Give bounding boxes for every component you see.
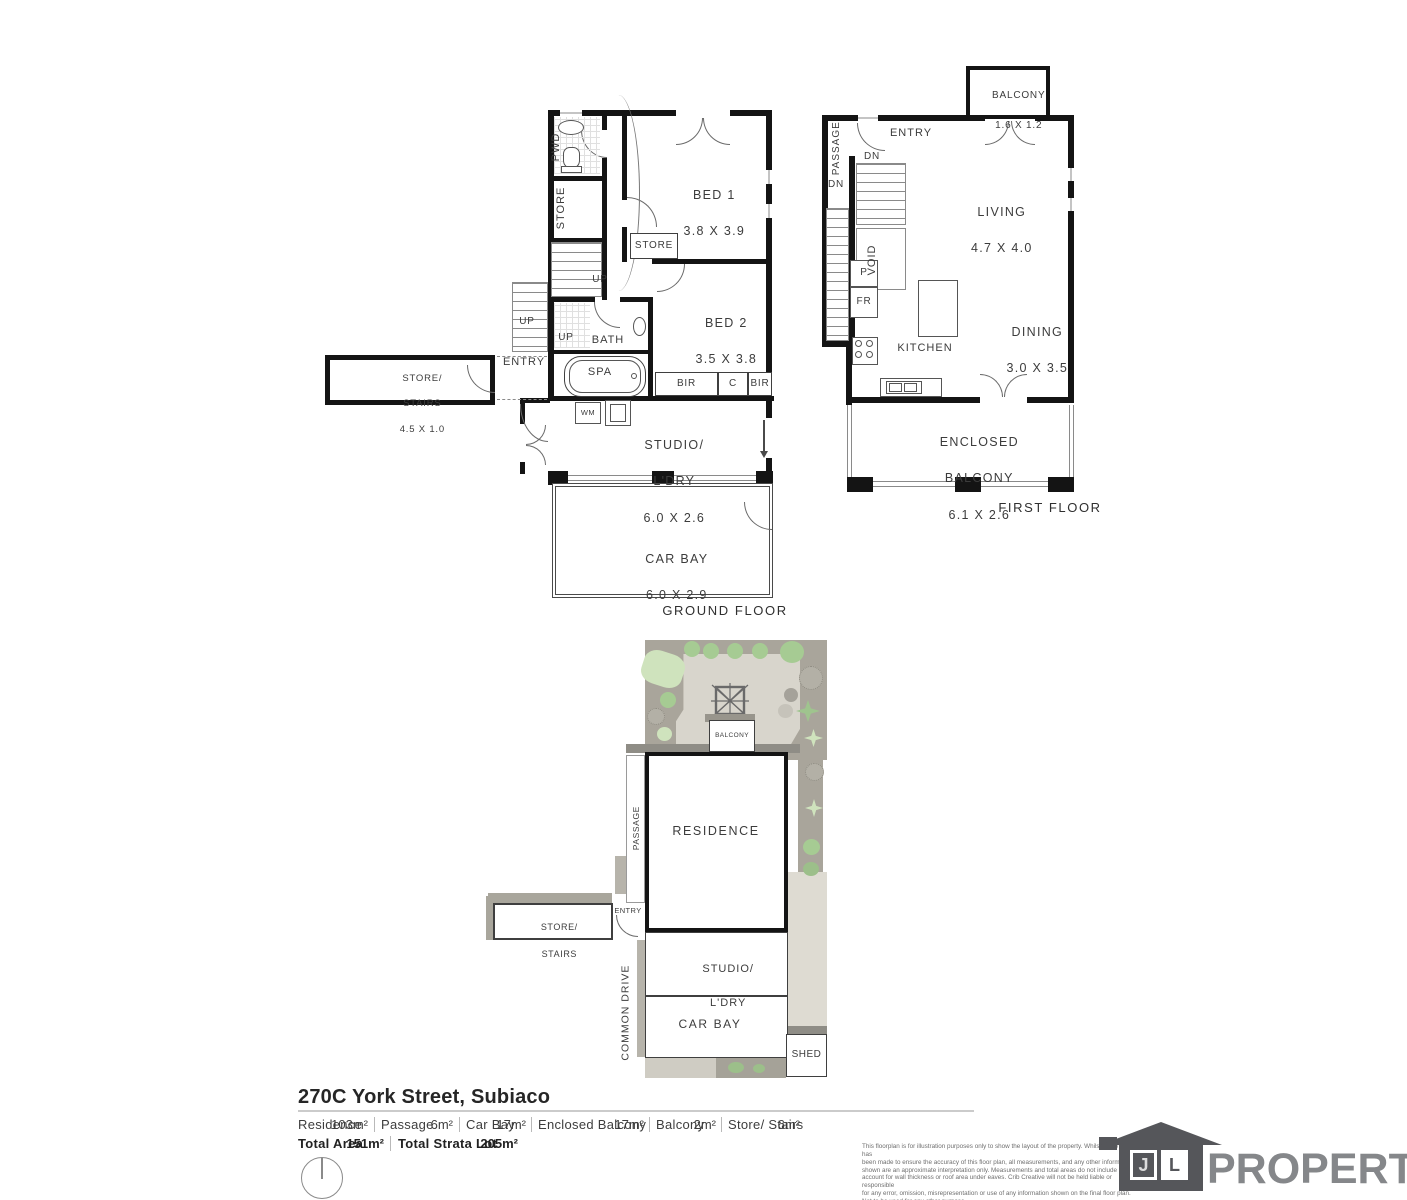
stove-burner [866,351,873,358]
logo-roof [1100,1122,1222,1145]
area-item-value: 17m² [486,1117,526,1132]
enclosed-balcony-label: ENCLOSED BALCONY 6.1 X 2.6 [905,415,1025,542]
living-name: LIVING [977,205,1026,219]
balcony-label: BALCONY 1.6 X 1.2 [966,73,1050,148]
fridge-label: FR [850,295,878,310]
studio-line2: L'DRY [653,474,695,488]
sink-bowl [889,383,902,392]
window [766,204,772,218]
bir-left-label: BIR [655,377,718,392]
passage-label: PASSAGE [830,108,845,188]
site-store-stairs-line1: STORE/ [541,922,578,932]
site-studio-line2: L'DRY [710,997,746,1009]
tree [803,839,820,855]
entry-label: ENTRY [498,355,550,371]
tree [684,641,700,657]
window [1068,168,1074,181]
paving-strip [716,1058,786,1078]
bed2-name: BED 2 [705,316,748,330]
store-label: STORE [554,168,570,248]
stove-burner [866,340,873,347]
divider [649,1117,650,1132]
area-item-value: 6m² [760,1117,800,1132]
door-arc [857,123,885,151]
dining-name: DINING [1012,325,1064,339]
site-passage-label: PASSAGE [630,788,642,868]
kitchen-label: KITCHEN [890,341,960,357]
site-balcony-label: BALCONY [709,731,755,740]
divider [721,1117,722,1132]
north-needle [321,1158,323,1179]
site-residence-box [645,752,788,932]
living-size: 4.7 X 4.0 [971,241,1033,255]
site-studio-line1: STUDIO/ [702,963,754,975]
bed1-store-label: STORE [630,239,678,254]
store-stairs-line2: STAIRS [403,398,441,409]
dn-label: DN [858,150,886,165]
door-arc [526,445,546,465]
total-value: 205m² [478,1136,518,1151]
wall-segment [520,462,525,474]
wall-segment [766,400,772,418]
logo-wordmark: PROPERTY [1207,1145,1407,1194]
logo-letter-l-box: L [1161,1150,1188,1180]
window [1068,198,1074,211]
site-carbay-label: CAR BAY [650,1016,770,1033]
tree [752,643,768,659]
paving-strip [615,856,626,894]
ground-floor-caption: GROUND FLOOR [660,602,790,621]
divider [374,1117,375,1132]
tree [703,643,719,659]
disclaimer-text: This floorplan is for illustration purpo… [862,1143,1140,1200]
paving-strip [786,1026,827,1034]
bed1-size: 3.8 X 3.9 [683,224,745,238]
door-arrow-head [760,451,768,458]
logo-letter-j-box: J [1130,1150,1157,1180]
up-label: UP [512,315,542,330]
window-wall [1069,405,1074,479]
shrub [753,1064,765,1073]
window [858,115,878,121]
tree [647,708,665,725]
tree [727,643,743,659]
spa-label: SPA [578,365,622,381]
tree [660,692,676,708]
door-arc [676,118,703,145]
studio-line1: STUDIO/ [644,438,704,452]
entry-label: ENTRY [883,126,939,142]
total-value: 151m² [344,1136,384,1151]
window [766,170,772,184]
title-rule [298,1110,974,1112]
site-entry-label: ENTRY [609,906,647,917]
divider [459,1117,460,1132]
area-item-value: 17m² [604,1117,644,1132]
area-item-value: 6m² [413,1117,453,1132]
site-store-stairs-line2: STAIRS [542,949,577,959]
store-stairs-size: 4.5 X 1.0 [400,424,445,435]
path [786,872,827,1034]
shrub [728,1062,744,1073]
common-drive-label: COMMON DRIVE [618,928,633,1098]
cupboard-label: C [718,377,748,392]
tree [778,704,793,718]
stove-burner [855,351,862,358]
balcony-name: BALCONY [992,90,1045,101]
stairs-up [551,242,602,297]
carbay-name: CAR BAY [645,552,708,566]
sink-bowl [904,383,917,392]
shrub [803,862,819,876]
pillar [847,477,873,492]
bed2-label: BED 2 3.5 X 3.8 [652,296,772,387]
carbay-size: 6.0 X 2.9 [646,588,708,602]
logo-letter-l: L [1169,1155,1180,1176]
divider [390,1136,391,1151]
curved-wall [597,95,640,291]
studio-label: STUDIO/ L'DRY 6.0 X 2.6 [600,418,720,545]
stove-burner [855,340,862,347]
bir-right-label: BIR [748,377,772,392]
floorplan-page: PWD STORE UP UP UP BATH SPA ENTRY STORE/… [0,0,1407,1200]
stairs-down-inner [856,163,906,225]
door-arrow [763,420,765,452]
spa-jet [631,373,637,379]
dn-label: DN [822,178,850,193]
void-label: VOID [865,220,881,300]
divider [531,1117,532,1132]
window-wall [847,405,852,479]
studio-size: 6.0 X 2.6 [643,511,705,525]
kitchen-island [918,280,958,337]
logo-letter-j: J [1138,1155,1148,1176]
bath-label: BATH [586,333,630,349]
up-label: UP [551,331,581,346]
door-arc [703,118,730,145]
wall-segment [548,297,595,302]
wall-segment [1027,397,1074,403]
bed2-size: 3.5 X 3.8 [695,352,757,366]
enclosed-line2: BALCONY [945,471,1014,485]
bath-basin [633,317,646,336]
tree [784,688,798,702]
enclosed-line1: ENCLOSED [940,435,1019,449]
tree [657,727,672,741]
tree [805,763,824,781]
paving-strip [488,893,612,903]
site-store-stairs-label: STORE/ STAIRS [500,907,600,975]
up-label: UP [585,273,615,288]
wall-segment [852,397,980,403]
stairs-down-passage [826,208,849,341]
page-title: 270C York Street, Subiaco [298,1086,550,1109]
living-label: LIVING 4.7 X 4.0 [930,185,1045,276]
wall-segment [822,115,985,121]
store-stairs-label: STORE/ STAIRS 4.5 X 1.0 [352,360,472,450]
entry-threshold [497,399,547,400]
bed1-name: BED 1 [693,188,736,202]
store-stairs-line1: STORE/ [402,373,442,384]
wm-label: WM [575,408,601,419]
tree [799,666,823,690]
door-arc [520,404,548,442]
door-arc [594,302,620,328]
balcony-size: 1.6 X 1.2 [995,120,1042,131]
dining-size: 3.0 X 3.5 [1006,361,1068,375]
site-shed-label: SHED [786,1048,827,1063]
area-item-value: 2m² [676,1117,716,1132]
first-floor-caption: FIRST FLOOR [995,499,1105,518]
tree [780,641,804,663]
site-residence-label: RESIDENCE [656,822,776,840]
pillar [1048,477,1074,492]
dining-label: DINING 3.0 X 3.5 [968,305,1078,396]
door-arc [657,264,685,292]
pantry-label: P [850,266,878,281]
wall-segment [548,350,648,354]
area-item-value: 103m² [328,1117,368,1132]
